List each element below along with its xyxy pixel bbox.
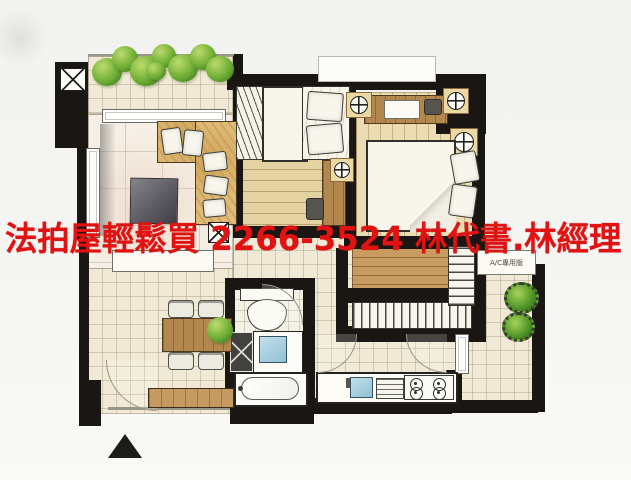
wall <box>79 240 89 382</box>
pipe-shaft-x-icon <box>60 68 86 91</box>
entrance-arrow-icon <box>108 434 142 458</box>
bedroom2-pillow <box>306 91 344 122</box>
background-smudge <box>0 8 47 68</box>
kitchen-faucet-icon <box>346 378 350 388</box>
bedroom2-pillow <box>306 122 344 155</box>
master-console-drawer <box>384 100 420 119</box>
master-pillow <box>450 150 481 185</box>
sofa-pillow <box>160 127 183 156</box>
table-plant-icon <box>207 317 233 343</box>
floorplan-image: A/C專用版 法拍屋輕鬆買 2266-3524 林代書.林經理 <box>0 0 631 480</box>
light-symbol-icon <box>330 158 354 182</box>
wall <box>230 406 314 424</box>
dining-chair <box>198 300 224 318</box>
bathroom-sink <box>259 336 287 363</box>
sofa-pillow <box>203 174 229 196</box>
stove <box>404 375 454 400</box>
master-console-item <box>424 99 442 115</box>
dining-chair <box>198 352 224 370</box>
potted-plant-icon <box>502 312 535 342</box>
plant-icon <box>146 62 166 80</box>
nightstand-light-icon <box>346 92 372 118</box>
window-ledge <box>318 56 436 82</box>
potted-plant-icon <box>504 282 539 314</box>
dining-chair <box>168 300 194 318</box>
bathtub <box>234 372 308 407</box>
closet-cabinet-band <box>348 288 452 303</box>
plant-icon <box>206 56 234 82</box>
wall <box>79 380 101 426</box>
sofa-pillow <box>182 129 205 157</box>
closet-hanger-rail-bottom <box>352 302 472 329</box>
nightstand-light-icon <box>443 88 469 114</box>
entry-bench <box>148 388 234 408</box>
kitchen-sink <box>350 377 373 398</box>
dining-chair <box>168 352 194 370</box>
bedroom2-closet-hangers <box>236 86 264 160</box>
tub-faucet-icon <box>238 386 243 391</box>
bathroom-shaft-x-icon <box>230 332 253 372</box>
kitchen-balcony-window <box>455 334 469 374</box>
ad-overlay-text: 法拍屋輕鬆買 2266-3524 林代書.林經理 <box>5 212 618 260</box>
burner-icon <box>433 387 446 400</box>
wall <box>336 248 348 328</box>
sofa-pillow <box>202 151 228 173</box>
kitchen-drawers <box>376 378 404 399</box>
bathtub-inner <box>241 377 299 400</box>
burner-icon <box>410 387 423 400</box>
